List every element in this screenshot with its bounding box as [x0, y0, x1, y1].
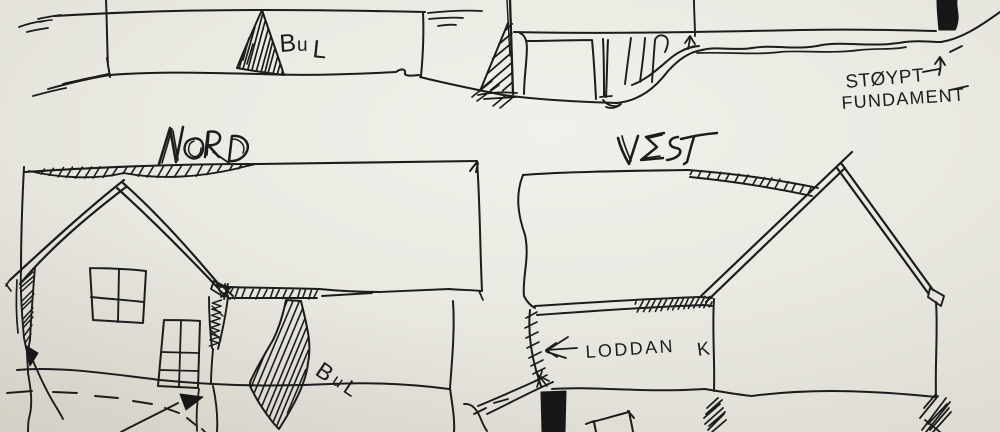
svg-text:B: B	[278, 29, 298, 58]
svg-text:u: u	[297, 35, 308, 56]
